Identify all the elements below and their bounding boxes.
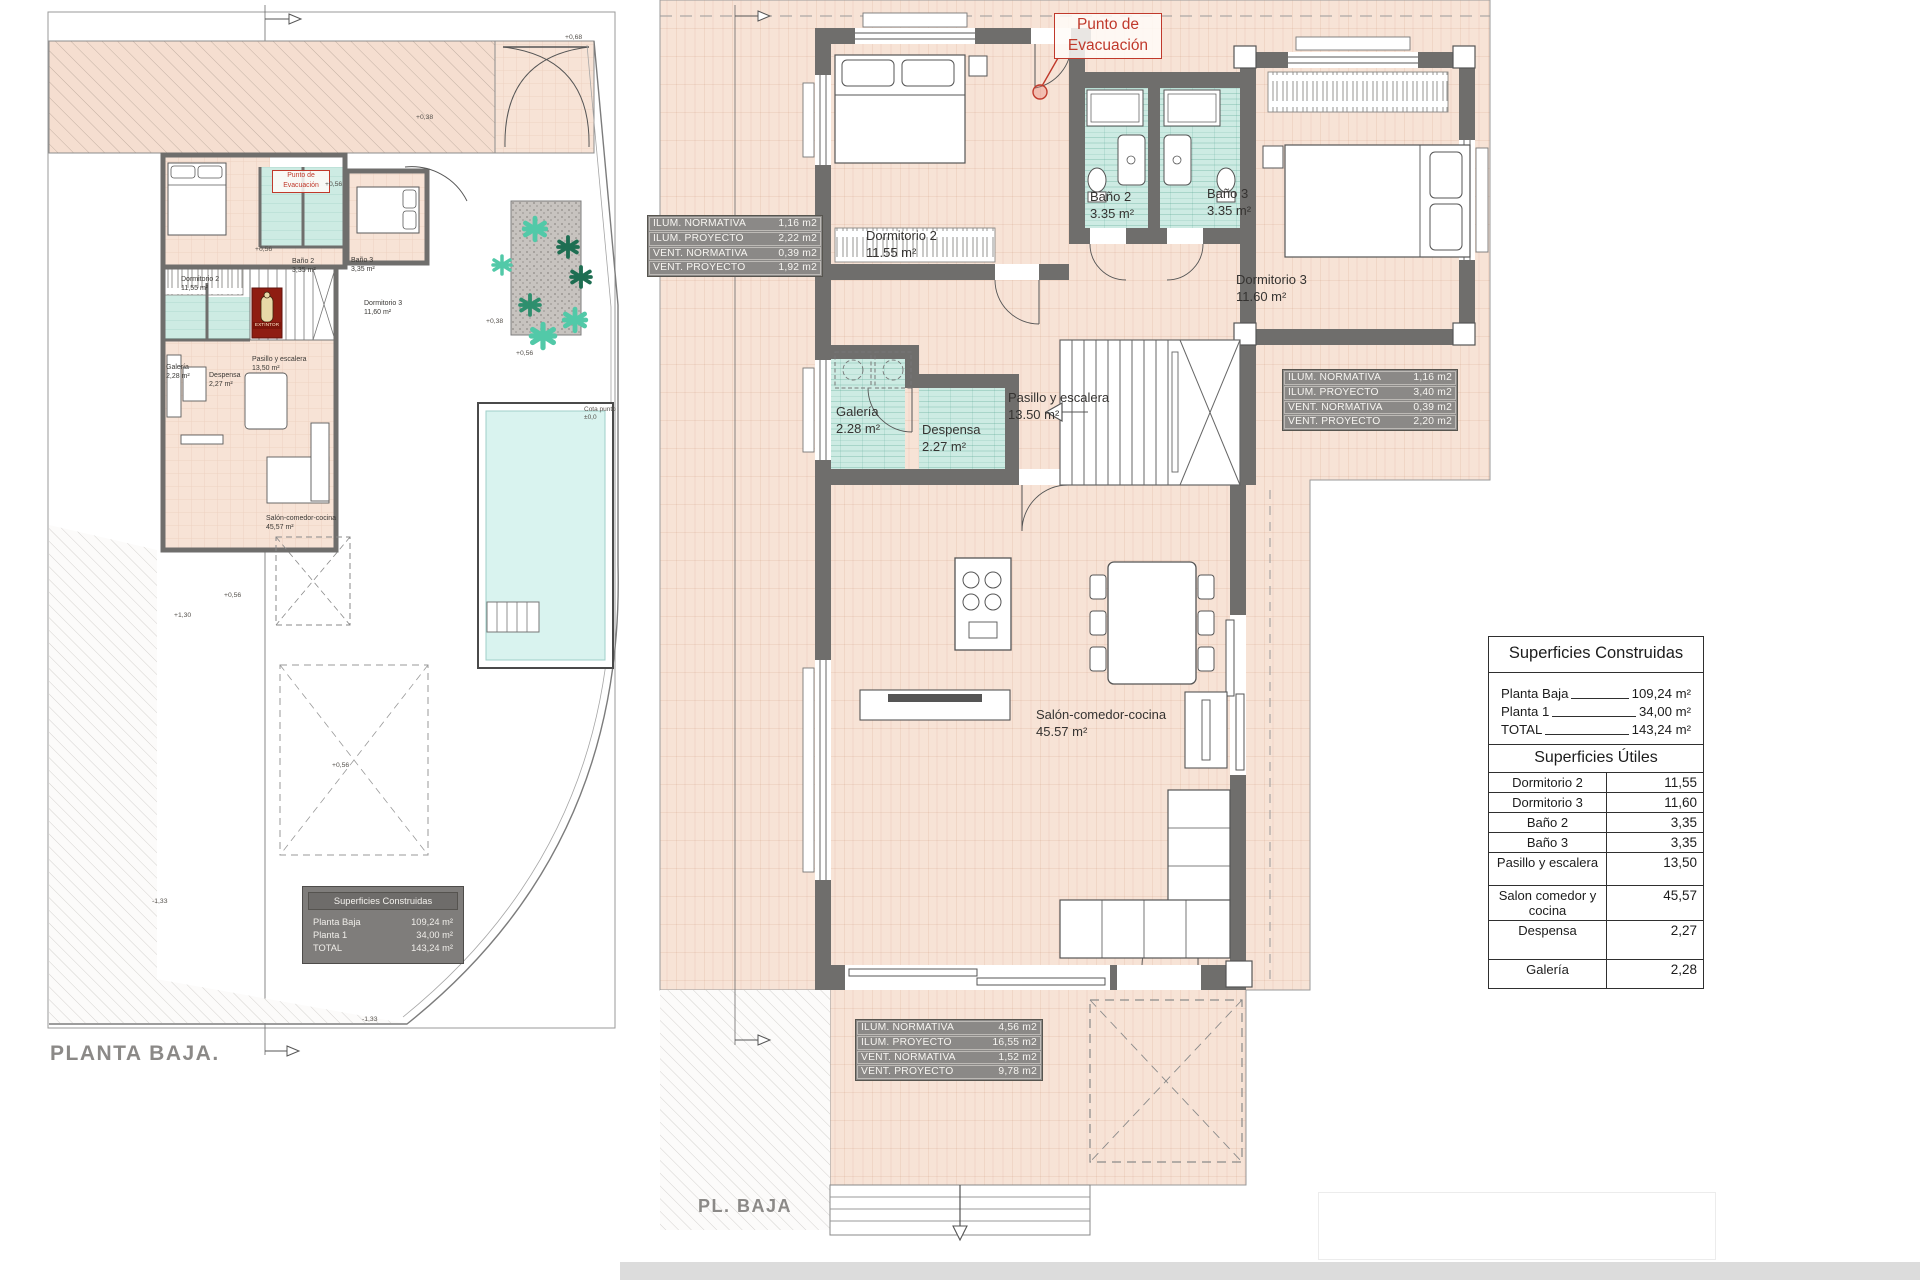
vent-row: VENT. PROYECTO9,78 m2 bbox=[857, 1065, 1041, 1079]
vent-row: VENT. NORMATIVA0,39 m2 bbox=[649, 247, 821, 261]
floor-plan-sheet: Punto de Evacuación Dormitorio 2 11.55 m… bbox=[0, 0, 1920, 1280]
site-room-label-salon: Salón-comedor-cocina45,57 m² bbox=[266, 515, 336, 533]
evacuation-point-callout-small: Punto de Evacuación bbox=[272, 170, 330, 193]
vent-row: ILUM. PROYECTO16,55 m2 bbox=[857, 1036, 1041, 1050]
evacuation-line2: Evacuación bbox=[1055, 35, 1161, 56]
vent-row: VENT. NORMATIVA0,39 m2 bbox=[1284, 401, 1456, 415]
cota-label: Cota punto±0,0 bbox=[584, 406, 616, 422]
surfaces-row: Planta Baja109,24 m² bbox=[303, 915, 463, 928]
site-room-label-bano3: Baño 33,35 m² bbox=[351, 257, 375, 275]
surfaces-box-dark: Superficies Construidas Planta Baja109,2… bbox=[302, 886, 464, 964]
table-row: Baño 33,35 bbox=[1489, 833, 1703, 853]
room-label-salon: Salón-comedor-cocina 45.57 m² bbox=[1036, 707, 1166, 741]
table-row: Planta Baja109,24 m² bbox=[1501, 686, 1691, 701]
blank-patch bbox=[1318, 1192, 1716, 1260]
superficies-construidas-table: Superficies Construidas Planta Baja109,2… bbox=[1488, 636, 1704, 750]
vent-row: ILUM. NORMATIVA1,16 m2 bbox=[1284, 371, 1456, 385]
site-room-label-bano2: Baño 23,35 m² bbox=[292, 258, 316, 276]
table-row: Galería2,28 bbox=[1489, 960, 1703, 988]
table-row: TOTAL143,24 m² bbox=[1501, 722, 1691, 737]
table-row: Despensa2,27 bbox=[1489, 921, 1703, 960]
vent-row: VENT. PROYECTO2,20 m2 bbox=[1284, 415, 1456, 429]
right-plan-title: PL. BAJA bbox=[698, 1196, 792, 1217]
vent-row: VENT. NORMATIVA1,52 m2 bbox=[857, 1051, 1041, 1065]
surfaces-box-title: Superficies Construidas bbox=[308, 892, 458, 910]
vent-row: ILUM. NORMATIVA4,56 m2 bbox=[857, 1021, 1041, 1035]
spot-level: +0,68 bbox=[565, 34, 582, 41]
spot-level: +0,38 bbox=[486, 318, 503, 325]
bottom-strip bbox=[620, 1262, 1920, 1280]
site-room-label-dormitorio3: Dormitorio 311,60 m² bbox=[364, 300, 402, 318]
table-row: Baño 23,35 bbox=[1489, 813, 1703, 833]
room-label-bano3: Baño 3 3.35 m² bbox=[1207, 186, 1251, 220]
spot-level: +0,56 bbox=[224, 592, 241, 599]
spot-level: +1,30 bbox=[174, 612, 191, 619]
vent-table-dormitorio2: ILUM. NORMATIVA1,16 m2 ILUM. PROYECTO2,2… bbox=[647, 215, 823, 277]
room-label-bano2: Baño 2 3.35 m² bbox=[1090, 189, 1134, 223]
site-room-label-pasillo: Pasillo y escalera13,50 m² bbox=[252, 356, 306, 374]
left-plan-title: PLANTA BAJA. bbox=[50, 1042, 220, 1066]
table-row: Planta 134,00 m² bbox=[1501, 704, 1691, 719]
spot-level: +0,56 bbox=[332, 762, 349, 769]
vent-row: ILUM. PROYECTO2,22 m2 bbox=[649, 232, 821, 246]
room-label-galeria: Galería 2.28 m² bbox=[836, 404, 880, 438]
table-row: Dormitorio 311,60 bbox=[1489, 793, 1703, 813]
table-row: Salon comedor y cocina45,57 bbox=[1489, 886, 1703, 921]
table-title: Superficies Construidas bbox=[1489, 637, 1703, 673]
evacuation-point-callout: Punto de Evacuación bbox=[1054, 13, 1162, 59]
spot-level: +0,56 bbox=[255, 246, 272, 253]
evacuation-line1: Punto de bbox=[1055, 14, 1161, 35]
room-label-despensa: Despensa 2.27 m² bbox=[922, 422, 981, 456]
spot-level: +0,56 bbox=[516, 350, 533, 357]
superficies-utiles-table: Superficies Útiles Dormitorio 211,55 Dor… bbox=[1488, 744, 1704, 989]
table-row: Dormitorio 211,55 bbox=[1489, 773, 1703, 793]
site-room-label-despensa: Despensa2,27 m² bbox=[209, 372, 241, 390]
site-room-label-dormitorio2: Dormitorio 211,55 m² bbox=[181, 276, 219, 294]
room-label-pasillo: Pasillo y escalera 13.50 m² bbox=[1008, 390, 1109, 424]
surfaces-row: TOTAL143,24 m² bbox=[303, 941, 463, 954]
room-label-dormitorio2: Dormitorio 2 11.55 m² bbox=[866, 228, 937, 262]
surfaces-row: Planta 134,00 m² bbox=[303, 928, 463, 941]
site-room-label-galeria: Galería2,28 m² bbox=[166, 364, 190, 382]
vent-table-salon: ILUM. NORMATIVA4,56 m2 ILUM. PROYECTO16,… bbox=[855, 1019, 1043, 1081]
vent-table-dormitorio3: ILUM. NORMATIVA1,16 m2 ILUM. PROYECTO3,4… bbox=[1282, 369, 1458, 431]
room-label-dormitorio3: Dormitorio 3 11.60 m² bbox=[1236, 272, 1307, 306]
table-row: Pasillo y escalera13,50 bbox=[1489, 853, 1703, 886]
spot-level: +0,38 bbox=[416, 114, 433, 121]
spot-level: +0,56 bbox=[325, 181, 342, 188]
vent-row: VENT. PROYECTO1,92 m2 bbox=[649, 261, 821, 275]
table-title: Superficies Útiles bbox=[1489, 745, 1703, 773]
vent-row: ILUM. PROYECTO3,40 m2 bbox=[1284, 386, 1456, 400]
vent-row: ILUM. NORMATIVA1,16 m2 bbox=[649, 217, 821, 231]
spot-level: -1,33 bbox=[152, 898, 168, 905]
floor-plan-drawing bbox=[620, 0, 1520, 1280]
extintor-label: EXTINTOR bbox=[252, 322, 282, 329]
spot-level: -1,33 bbox=[362, 1016, 378, 1023]
